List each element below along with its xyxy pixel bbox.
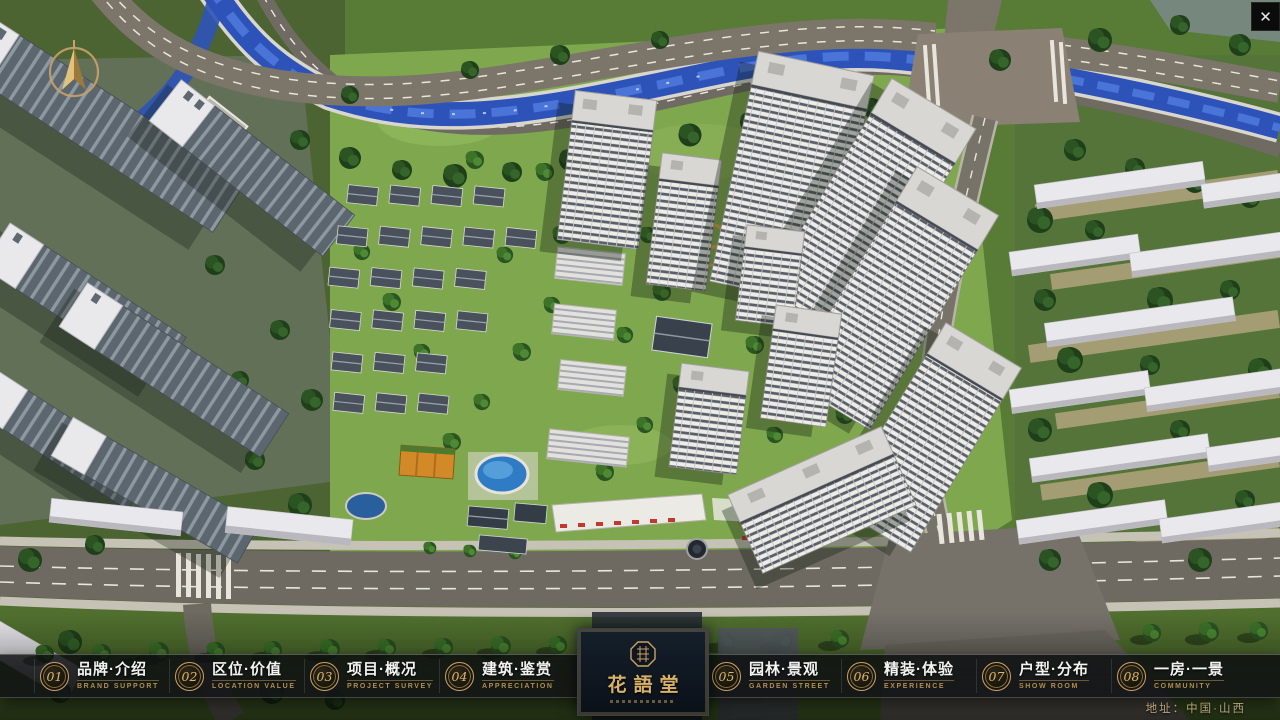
nav-label-en: GARDEN STREET — [749, 680, 830, 690]
nav-item-brand[interactable]: 01 品牌·介绍BRAND SUPPORT — [40, 655, 174, 697]
nav-label-zh: 精装·体验 — [884, 662, 954, 678]
nav-item-architecture[interactable]: 04 建筑·鉴赏APPRECIATION — [445, 655, 579, 697]
project-address: 地址：中国·山西 — [1146, 700, 1246, 716]
nav-badge-02: 02 — [175, 662, 204, 691]
project-logo-subtitle — [610, 700, 676, 703]
nav-badge-04: 04 — [445, 662, 474, 691]
nav-label-zh: 品牌·介绍 — [77, 662, 159, 678]
nav-label-zh: 园林·景观 — [749, 662, 830, 678]
nav-label-en: SHOW ROOM — [1019, 680, 1089, 690]
seal-emblem-icon — [630, 641, 656, 667]
nav-label-zh: 建筑·鉴赏 — [482, 662, 554, 678]
nav-label-zh: 一房·一景 — [1154, 662, 1224, 678]
nav-label-zh: 区位·价值 — [212, 662, 296, 678]
nav-label-en: BRAND SUPPORT — [77, 680, 159, 690]
nav-label-en: EXPERIENCE — [884, 680, 954, 690]
nav-item-location[interactable]: 02 区位·价值LOCATION VALUE — [175, 655, 309, 697]
nav-badge-08: 08 — [1117, 662, 1146, 691]
aerial-masterplan-render — [0, 0, 1280, 720]
nav-item-floorplans[interactable]: 07 户型·分布SHOW ROOM — [982, 655, 1116, 697]
nav-badge-06: 06 — [847, 662, 876, 691]
nav-label-en: APPRECIATION — [482, 680, 554, 690]
nav-item-views[interactable]: 08 一房·一景COMMUNITY — [1117, 655, 1251, 697]
nav-label-en: PROJECT SURVEY — [347, 680, 433, 690]
project-logo-button[interactable]: 花語堂 — [577, 628, 709, 716]
nav-label-en: LOCATION VALUE — [212, 680, 296, 690]
nav-badge-07: 07 — [982, 662, 1011, 691]
nav-item-interior[interactable]: 06 精装·体验EXPERIENCE — [847, 655, 981, 697]
nav-label-zh: 项目·概况 — [347, 662, 433, 678]
project-logo-title: 花語堂 — [600, 670, 685, 697]
sales-kiosk-screen: ✕ 01 品牌·介绍BRAND SUPPORT 02 区位·价值LOCATION… — [0, 0, 1280, 720]
nav-label-zh: 户型·分布 — [1019, 662, 1089, 678]
nav-badge-03: 03 — [310, 662, 339, 691]
nav-item-garden[interactable]: 05 园林·景观GARDEN STREET — [712, 655, 846, 697]
nav-badge-05: 05 — [712, 662, 741, 691]
nav-label-en: COMMUNITY — [1154, 680, 1224, 690]
nav-item-project[interactable]: 03 项目·概况PROJECT SURVEY — [310, 655, 444, 697]
nav-badge-01: 01 — [40, 662, 69, 691]
close-button[interactable]: ✕ — [1251, 2, 1280, 31]
